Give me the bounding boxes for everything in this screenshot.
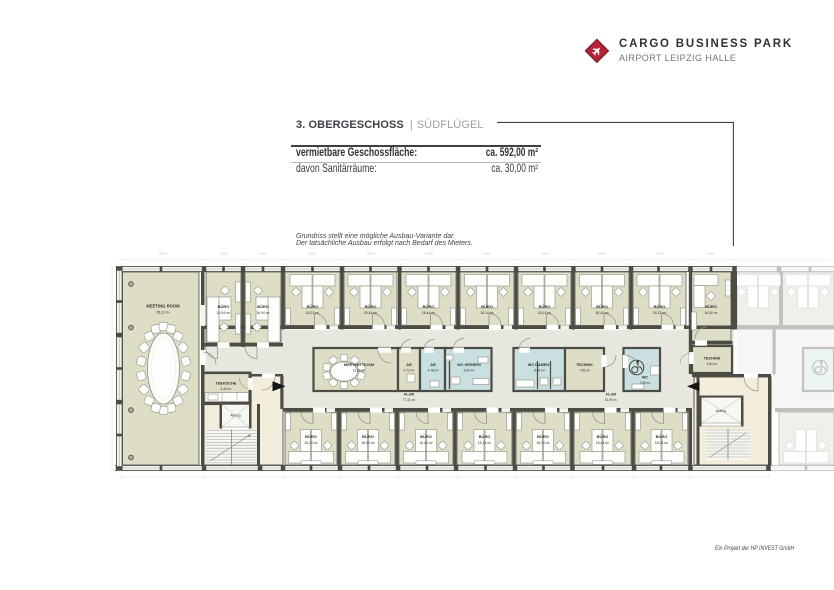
svg-text:11,28 m²: 11,28 m² <box>353 369 365 373</box>
svg-text:7,55 m²: 7,55 m² <box>579 369 590 373</box>
svg-text:TECHNIK: TECHNIK <box>576 363 593 367</box>
svg-text:18,14 m²: 18,14 m² <box>480 311 494 315</box>
svg-text:95,12 m²: 95,12 m² <box>156 311 170 315</box>
svg-text:AR: AR <box>430 363 436 367</box>
svg-text:4,72 m²: 4,72 m² <box>404 369 415 373</box>
svg-text:8,94 m²: 8,94 m² <box>464 369 475 373</box>
svg-text:18,23 m²: 18,23 m² <box>306 311 320 315</box>
svg-text:16,94 m²: 16,94 m² <box>217 311 231 315</box>
svg-text:BÜRO: BÜRO <box>420 434 432 439</box>
svg-text:BÜRO: BÜRO <box>365 304 377 309</box>
svg-text:AR: AR <box>406 363 412 367</box>
svg-text:18,44 m²: 18,44 m² <box>422 311 436 315</box>
svg-text:Aufzug: Aufzug <box>230 414 240 418</box>
svg-text:BÜRO: BÜRO <box>656 434 668 439</box>
svg-text:FLUR: FLUR <box>606 393 616 397</box>
svg-text:WC HERREN: WC HERREN <box>457 363 481 367</box>
svg-text:18,44 m²: 18,44 m² <box>361 441 375 445</box>
svg-text:BÜRO: BÜRO <box>307 304 319 309</box>
svg-text:77,31 m²: 77,31 m² <box>403 398 416 402</box>
svg-text:18,14 m²: 18,14 m² <box>538 311 552 315</box>
svg-text:BÜRO: BÜRO <box>596 304 608 309</box>
svg-text:18,23 m²: 18,23 m² <box>655 441 669 445</box>
svg-text:BÜRO: BÜRO <box>257 304 269 309</box>
svg-text:4,44 m²: 4,44 m² <box>221 387 232 391</box>
svg-text:BÜRO: BÜRO <box>481 304 493 309</box>
svg-text:BÜRO: BÜRO <box>305 434 317 439</box>
svg-text:TECHNIK: TECHNIK <box>704 357 721 361</box>
svg-text:18,14 m²: 18,14 m² <box>478 441 492 445</box>
svg-text:8,94 m²: 8,94 m² <box>534 369 545 373</box>
svg-text:BÜRO: BÜRO <box>537 434 549 439</box>
svg-text:Aufzug: Aufzug <box>716 409 726 413</box>
svg-text:7,55 m²: 7,55 m² <box>640 381 651 385</box>
svg-text:4,78 m²: 4,78 m² <box>428 369 439 373</box>
svg-text:FLUR: FLUR <box>404 393 414 397</box>
svg-text:TEEKÜCHE: TEEKÜCHE <box>216 381 237 386</box>
svg-text:BÜRO: BÜRO <box>362 434 374 439</box>
svg-text:18,23 m²: 18,23 m² <box>653 311 667 315</box>
svg-text:4,84 m²: 4,84 m² <box>707 362 718 366</box>
svg-text:18,44 m²: 18,44 m² <box>364 311 378 315</box>
svg-text:16,50 m²: 16,50 m² <box>704 311 718 315</box>
svg-text:BÜRO: BÜRO <box>539 304 551 309</box>
svg-text:18,23 m²: 18,23 m² <box>304 441 318 445</box>
svg-text:BÜRO: BÜRO <box>705 304 717 309</box>
svg-text:16,94 m²: 16,94 m² <box>256 311 270 315</box>
svg-text:BÜRO: BÜRO <box>479 434 491 439</box>
svg-text:18,44 m²: 18,44 m² <box>595 311 609 315</box>
svg-text:MEETING ROOM: MEETING ROOM <box>344 363 374 367</box>
svg-text:WC: WC <box>642 376 649 380</box>
svg-text:MEETING ROOM: MEETING ROOM <box>146 304 180 309</box>
svg-text:BÜRO: BÜRO <box>654 304 666 309</box>
svg-text:18,14 m²: 18,14 m² <box>536 441 550 445</box>
svg-text:BÜRO: BÜRO <box>597 434 609 439</box>
svg-text:WC DAMEN+: WC DAMEN+ <box>528 363 552 367</box>
svg-text:51,90 m²: 51,90 m² <box>605 398 618 402</box>
svg-text:BÜRO: BÜRO <box>218 304 230 309</box>
svg-text:BÜRO: BÜRO <box>423 304 435 309</box>
svg-text:18,44 m²: 18,44 m² <box>419 441 433 445</box>
svg-text:18,44 m²: 18,44 m² <box>596 441 610 445</box>
